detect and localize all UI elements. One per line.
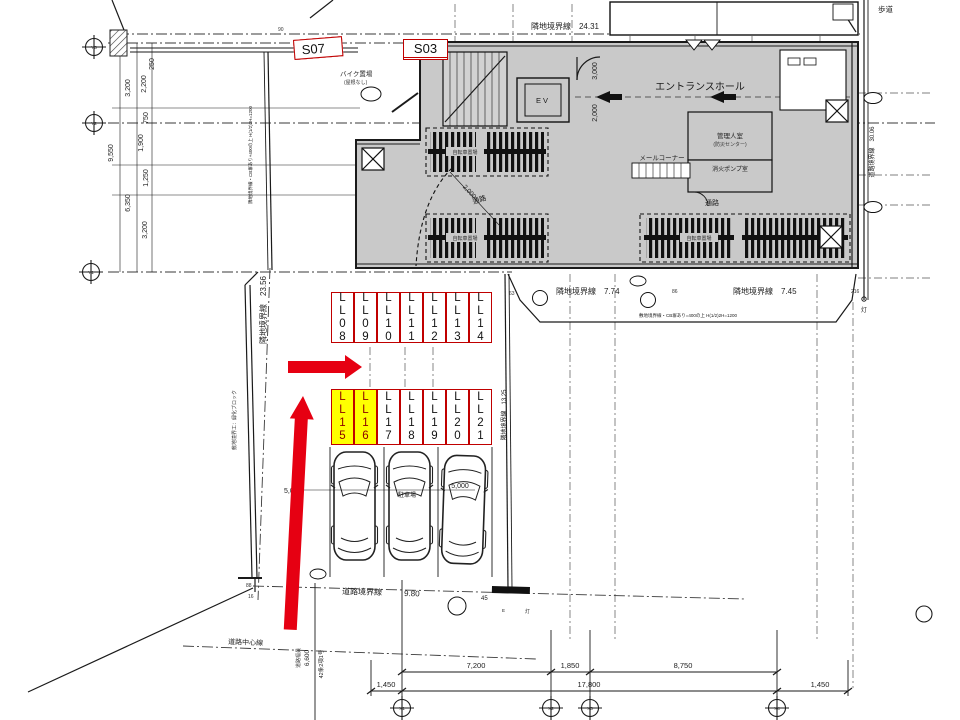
stall-row-upper: LL08 LL09 LL10 LL11 LL12 LL13 LL14 — [331, 292, 492, 343]
parking-label-S07[interactable]: S07 — [293, 36, 343, 60]
stairs — [443, 52, 507, 126]
pump-room-label: 消火ポンプ室 — [712, 165, 748, 173]
parking-label-S03[interactable]: S03 — [403, 39, 448, 58]
dim-3000: 3,000 — [592, 62, 599, 80]
stall-label-LL14[interactable]: LL14 — [469, 292, 492, 343]
entrance-hall-label: エントランスホール — [655, 81, 745, 93]
stall-label-LL21[interactable]: LL21 — [469, 389, 492, 445]
left-fence-note: 敷地境界工：緑化ブロック — [231, 390, 238, 450]
stall-label-LL09[interactable]: LL09 — [354, 292, 377, 343]
dim-750: 750 — [143, 112, 150, 124]
road-area: 道路境界線 9.80 45 E 灯 88 16 道路中心線 道路幅員 6,600… — [28, 583, 745, 720]
grid-x4: X4 — [774, 706, 780, 711]
dim-2200: 2,200 — [141, 75, 148, 93]
architectural-drawing: 250 3,200 2,200 750 1,900 9,550 1,250 6,… — [0, 0, 960, 720]
road-boundary-right-label: 道路境界線 30.06 — [868, 126, 876, 178]
manager-room-label: 管理人室 — [717, 131, 744, 140]
sidewalk-label: 歩道 — [878, 4, 893, 14]
dim-45: 45 — [481, 596, 488, 602]
mail-corner-label: メールコーナー — [639, 154, 684, 162]
boundary-bottom-note: 敷地境界線・CB塀あり=400の上 H(1/2)2H=1200 — [639, 312, 738, 319]
right-road: 歩道 道路境界線 30.06 — [864, 0, 893, 300]
south-boundary: 隣地境界線 7.74 隣地境界線 7.45 敷地境界線・CB塀あり=400の上 … — [500, 274, 867, 588]
dim-8750: 8,750 — [674, 661, 693, 670]
lamp-label: 灯 — [861, 306, 867, 314]
dim-16: 16 — [248, 594, 254, 600]
lamp-label-2: 灯 — [525, 608, 530, 615]
dim-5000: 5,000 — [451, 483, 469, 490]
dim-6350: 6,350 — [125, 194, 132, 212]
pole-label: E — [502, 608, 505, 613]
boundary-745-label: 隣地境界線 7.45 — [733, 286, 797, 296]
dim-216: 216 — [851, 289, 860, 295]
stall-label-LL16-highlighted[interactable]: LL16 — [354, 389, 377, 445]
dim-88: 88 — [246, 583, 252, 589]
dim-9550: 9,550 — [108, 144, 115, 162]
stall-label-LL11[interactable]: LL11 — [400, 292, 423, 343]
route-arrow-up — [279, 395, 315, 630]
dim-1900: 1,900 — [138, 134, 145, 152]
dim-1850: 1,850 — [561, 661, 580, 670]
road-boundary-label: 道路境界線 — [342, 586, 382, 597]
moto-sublabel: (屋根なし) — [344, 79, 368, 86]
road-boundary-val: 9.80 — [404, 589, 420, 598]
bottom-dimensions: 7,200 1,850 8,750 1,450 17,800 1,450 — [367, 580, 852, 701]
dim-86: 86 — [672, 289, 678, 295]
stall-label-LL08[interactable]: LL08 — [331, 292, 354, 343]
manager-room-sublabel: (防災センター) — [713, 141, 747, 148]
grid-x1: X1 — [399, 706, 405, 711]
stall-label-LL12[interactable]: LL12 — [423, 292, 446, 343]
left-dimension-chain: 250 3,200 2,200 750 1,900 9,550 1,250 6,… — [108, 43, 360, 272]
boundary-left-note: 隣地境界線・CB塀あり+400の上 H(1/2)3H=1200 — [247, 105, 254, 204]
stall-label-LL15-highlighted[interactable]: LL15 — [331, 389, 354, 445]
stall-label-LL13[interactable]: LL13 — [446, 292, 469, 343]
stall-label-LL19[interactable]: LL19 — [423, 389, 446, 445]
bike-rack-label-1: 自転車置場 — [452, 149, 477, 156]
dim-1450-right: 1,450 — [811, 680, 830, 689]
grid-x2: X2 — [548, 706, 554, 711]
parking-label: 駐車場 — [398, 491, 416, 499]
road-class-label: 42条2項1号 — [317, 649, 325, 678]
left-boundary: 隣地境界線 23.56 隣地境界線・CB塀あり+400の上 H(1/2)3H=1… — [231, 52, 272, 600]
dim-3200b: 3,200 — [142, 221, 149, 239]
stall-label-LL20[interactable]: LL20 — [446, 389, 469, 445]
road-width-label: 道路幅員 — [295, 648, 302, 668]
bike-rack-label-3: 自転車置場 — [686, 235, 711, 242]
stall-label-LL10[interactable]: LL10 — [377, 292, 400, 343]
dim-250: 250 — [149, 58, 156, 70]
elevator: EV — [517, 78, 569, 122]
stall-label-LL18[interactable]: LL18 — [400, 389, 423, 445]
boundary-774-label: 隣地境界線 7.74 — [556, 286, 620, 296]
elevator-label: EV — [536, 96, 550, 105]
dim-1250: 1,250 — [143, 169, 150, 187]
boundary-top-label: 隣地境界線 24.31 — [531, 21, 600, 31]
boundary-1325-label: 隣地境界線 13.25 — [500, 389, 508, 441]
grid-x3: X3 — [587, 706, 593, 711]
corridor-label-2: 通路 — [705, 198, 719, 207]
dim-17800: 17,800 — [578, 680, 601, 689]
dim-1450-left: 1,450 — [377, 680, 396, 689]
road-center-label: 道路中心線 — [228, 637, 263, 647]
moto-label: バイク置場 — [340, 69, 373, 78]
stall-label-LL17[interactable]: LL17 — [377, 389, 400, 445]
dim-90: 90 — [278, 27, 284, 33]
grid-y1: Y1 — [88, 270, 94, 275]
dim-3200a: 3,200 — [125, 79, 132, 97]
site-plan-page: 250 3,200 2,200 750 1,900 9,550 1,250 6,… — [0, 0, 960, 720]
dim-7200: 7,200 — [467, 661, 486, 670]
route-arrow-right — [288, 355, 362, 379]
parking-area: 5,000 5,000 駐車場 — [284, 347, 492, 579]
stall-row-lower: LL15 LL16 LL17 LL18 LL19 LL20 LL21 — [331, 389, 492, 445]
road-width-val: 6,600 — [304, 649, 311, 666]
dim-2000v: 2,000 — [592, 104, 599, 122]
grid-y2: Y2 — [91, 121, 97, 126]
boundary-left-label: 隣地境界線 23.56 — [258, 275, 268, 344]
mail-corner: メールコーナー — [632, 154, 690, 178]
grid-y3: Y3 — [91, 45, 97, 50]
bike-rack-label-2: 自転車置場 — [452, 235, 477, 242]
dim-63: 63 — [509, 291, 515, 297]
moto-yard: バイク置場 (屋根なし) — [340, 69, 418, 112]
